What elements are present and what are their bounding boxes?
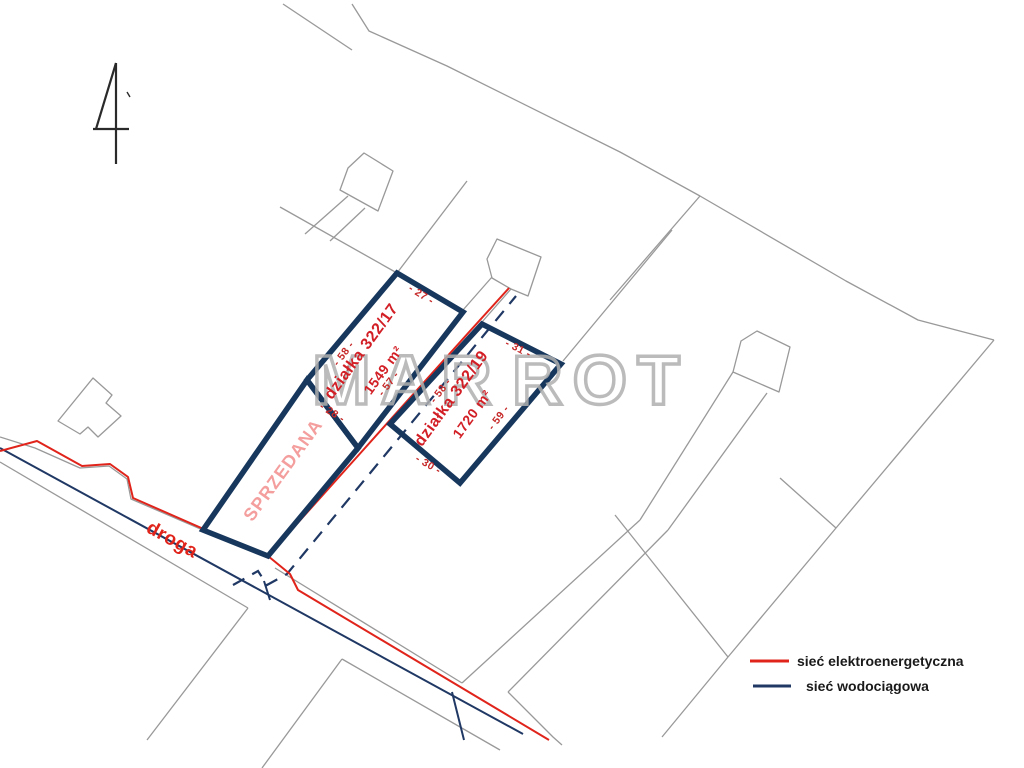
corridor-head <box>487 239 541 296</box>
road-edge-top <box>275 568 462 683</box>
legend-power-label: sieć elektroenergetyczna <box>797 653 964 669</box>
parcel-line <box>280 207 397 273</box>
cadastral-map: MAR ROT działka 322/17 1549 m² działka 3… <box>0 0 1024 768</box>
parcel-line <box>780 478 836 528</box>
parcel-line <box>283 4 352 50</box>
side-road-edge <box>147 608 248 740</box>
branch-road-edge <box>508 530 668 692</box>
legend-water-label: sieć wodociągowa <box>806 678 929 694</box>
flag-parcel-head <box>733 331 790 392</box>
corridor-edge <box>463 277 492 310</box>
road-edge-bottom <box>342 659 500 750</box>
side-road-edge <box>262 659 342 768</box>
parcel-line <box>615 515 728 657</box>
flag-parcel-pole <box>305 196 348 234</box>
parcel-line <box>397 181 467 273</box>
corridor-edge <box>482 289 511 322</box>
flag-parcel-pole <box>330 208 365 241</box>
branch-road-edge <box>462 520 640 683</box>
parcel-line <box>610 196 700 300</box>
legend-swatches <box>750 661 791 686</box>
watermark-text-right: ROT <box>512 341 690 419</box>
road-edge-top <box>508 692 562 745</box>
building-outline <box>58 378 121 437</box>
parcel-line <box>352 4 994 340</box>
north-arrow-icon <box>93 63 130 164</box>
flag-parcel-head <box>340 153 393 211</box>
